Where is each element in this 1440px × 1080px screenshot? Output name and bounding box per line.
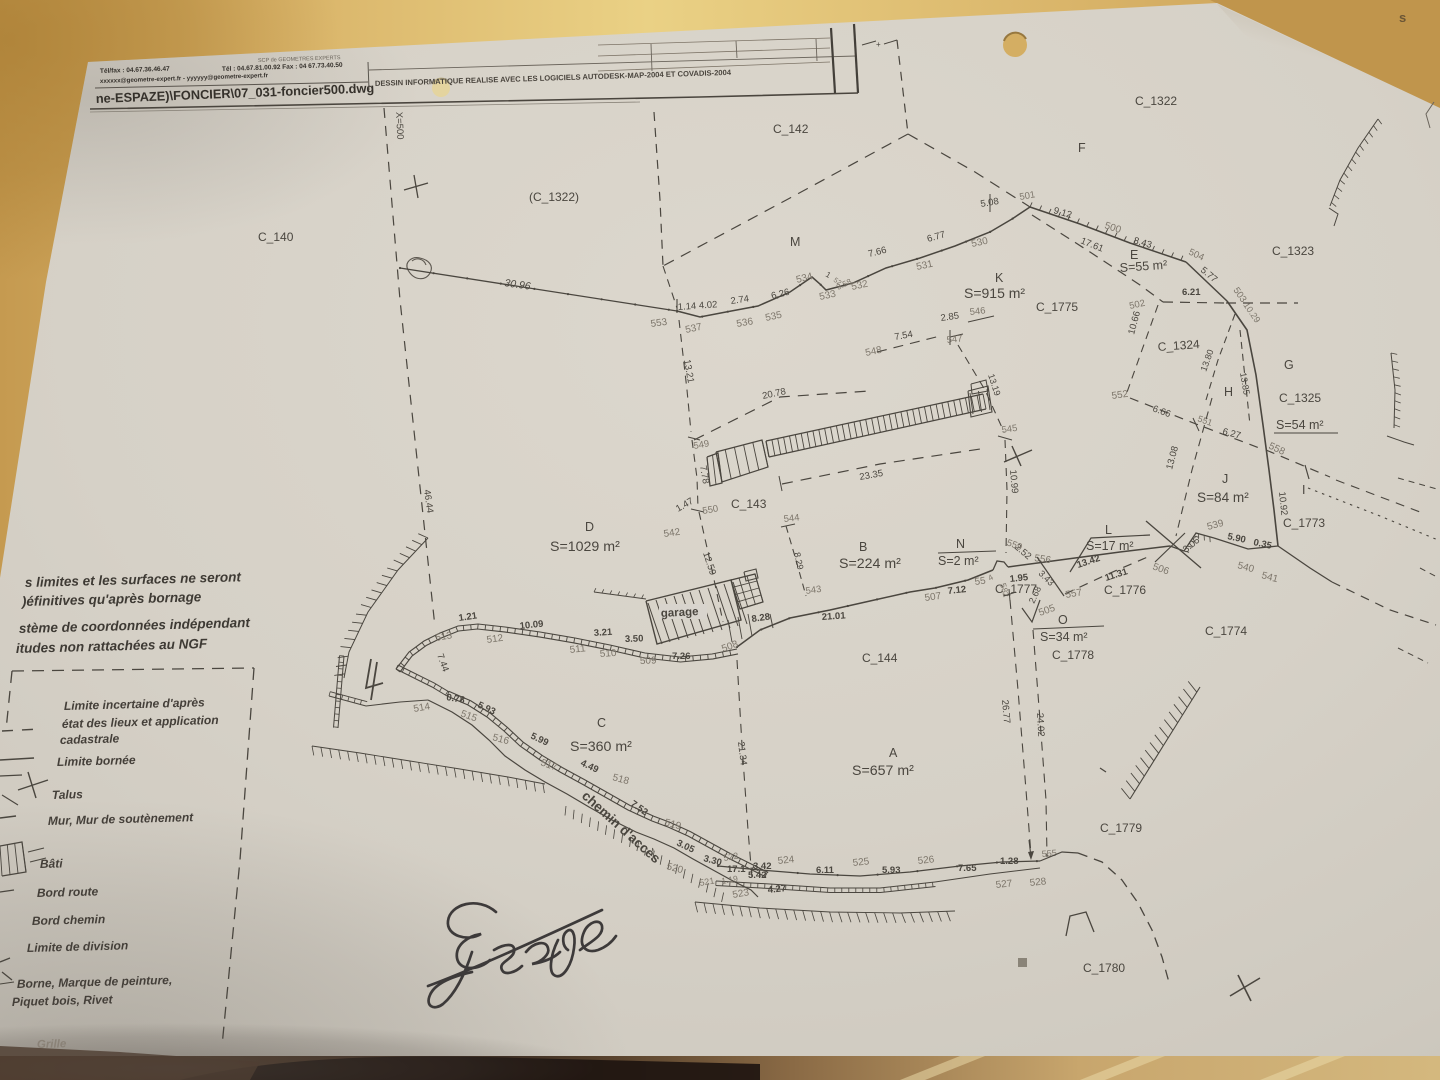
svg-text:C_1324: C_1324 xyxy=(1157,337,1200,354)
svg-text:5.93: 5.93 xyxy=(882,865,901,876)
svg-text:L: L xyxy=(1105,523,1112,537)
svg-text:Bord chemin: Bord chemin xyxy=(32,912,106,928)
svg-text:J: J xyxy=(1222,472,1228,486)
svg-text:C_143: C_143 xyxy=(731,497,767,511)
svg-text:C_1778: C_1778 xyxy=(1052,648,1094,662)
svg-text:547: 547 xyxy=(946,333,963,346)
svg-text:C_1776: C_1776 xyxy=(1104,583,1146,597)
svg-text:C_1779: C_1779 xyxy=(1100,821,1142,835)
svg-text:511: 511 xyxy=(569,643,586,656)
svg-text:H: H xyxy=(1224,385,1233,399)
svg-text:S=34 m²: S=34 m² xyxy=(1040,630,1088,644)
svg-text:6.21: 6.21 xyxy=(1182,287,1201,298)
svg-text:K: K xyxy=(995,271,1004,285)
svg-text:S=2 m²: S=2 m² xyxy=(938,554,979,568)
svg-text:C_1780: C_1780 xyxy=(1083,961,1125,975)
svg-text:C_142: C_142 xyxy=(773,122,809,136)
svg-text:4.27: 4.27 xyxy=(767,883,787,896)
svg-text:543: 543 xyxy=(805,584,822,597)
svg-text:7.65: 7.65 xyxy=(958,863,977,874)
svg-text:S=1029 m²: S=1029 m² xyxy=(550,539,620,555)
svg-text:S=17 m²: S=17 m² xyxy=(1086,539,1134,553)
svg-text:24.02: 24.02 xyxy=(1034,713,1046,737)
svg-text:545: 545 xyxy=(1001,423,1018,436)
svg-text:S=915 m²: S=915 m² xyxy=(964,285,1025,301)
svg-text:544: 544 xyxy=(783,512,800,525)
svg-text:X=500: X=500 xyxy=(393,112,405,140)
svg-text:Limite de division: Limite de division xyxy=(27,938,129,955)
svg-text:F: F xyxy=(1078,141,1086,155)
svg-text:S=360 m²: S=360 m² xyxy=(570,739,632,755)
svg-text:A: A xyxy=(889,746,898,760)
svg-text:10.99: 10.99 xyxy=(1007,469,1020,494)
svg-text:5.42: 5.42 xyxy=(748,870,767,881)
svg-text:C_1773: C_1773 xyxy=(1283,516,1325,530)
svg-text:526: 526 xyxy=(917,854,935,867)
svg-text:M: M xyxy=(790,235,800,249)
svg-text:S=657 m²: S=657 m² xyxy=(852,763,914,779)
svg-text:510: 510 xyxy=(599,648,617,660)
svg-text:527: 527 xyxy=(995,878,1013,891)
svg-text:G: G xyxy=(1284,358,1294,372)
svg-text:7.26: 7.26 xyxy=(672,651,691,662)
svg-text:C_1774: C_1774 xyxy=(1205,624,1247,638)
svg-text:55: 55 xyxy=(974,575,987,588)
svg-text:s: s xyxy=(1399,10,1406,25)
svg-text:S=224 m²: S=224 m² xyxy=(839,556,901,572)
svg-text:21.01: 21.01 xyxy=(821,610,846,623)
svg-text:C_1323: C_1323 xyxy=(1272,244,1314,258)
svg-text:Bord route: Bord route xyxy=(37,884,99,900)
svg-text:509: 509 xyxy=(640,655,657,667)
svg-text:525: 525 xyxy=(852,856,870,869)
svg-text:Talus: Talus xyxy=(52,787,84,802)
svg-text:C: C xyxy=(597,716,606,730)
svg-text:C_144: C_144 xyxy=(862,651,898,665)
svg-text:Limite bornée: Limite bornée xyxy=(57,753,136,769)
svg-text:N: N xyxy=(956,537,965,551)
svg-text:C_1775: C_1775 xyxy=(1036,300,1078,314)
svg-text:Piquet bois, Rivet: Piquet bois, Rivet xyxy=(12,992,114,1009)
svg-text:6.11: 6.11 xyxy=(816,865,835,876)
svg-text:1.28: 1.28 xyxy=(1000,856,1019,867)
svg-text:I: I xyxy=(1302,483,1305,497)
svg-text:cadastrale: cadastrale xyxy=(60,731,120,747)
svg-text:+: + xyxy=(876,40,881,49)
svg-text:Grille: Grille xyxy=(37,1038,67,1051)
svg-text:1.95: 1.95 xyxy=(1009,572,1029,585)
svg-text:S=54 m²: S=54 m² xyxy=(1276,418,1324,432)
svg-text:C_1322: C_1322 xyxy=(1135,94,1177,108)
svg-text:C_1325: C_1325 xyxy=(1279,391,1321,405)
svg-text:546: 546 xyxy=(969,305,986,318)
svg-text:(C_1322): (C_1322) xyxy=(529,190,579,204)
svg-text:524: 524 xyxy=(777,854,795,867)
svg-text:D: D xyxy=(585,520,594,534)
svg-text:B: B xyxy=(859,540,867,554)
svg-text:7.12: 7.12 xyxy=(947,584,967,597)
svg-text:3.21: 3.21 xyxy=(593,627,613,639)
svg-text:3.50: 3.50 xyxy=(625,633,644,645)
svg-text:528: 528 xyxy=(1029,876,1047,889)
svg-text:garage: garage xyxy=(661,606,699,620)
svg-text:C_140: C_140 xyxy=(258,230,294,244)
svg-text:S=84 m²: S=84 m² xyxy=(1197,490,1249,505)
svg-text:26.77: 26.77 xyxy=(999,699,1012,724)
svg-text:O: O xyxy=(1058,613,1068,627)
